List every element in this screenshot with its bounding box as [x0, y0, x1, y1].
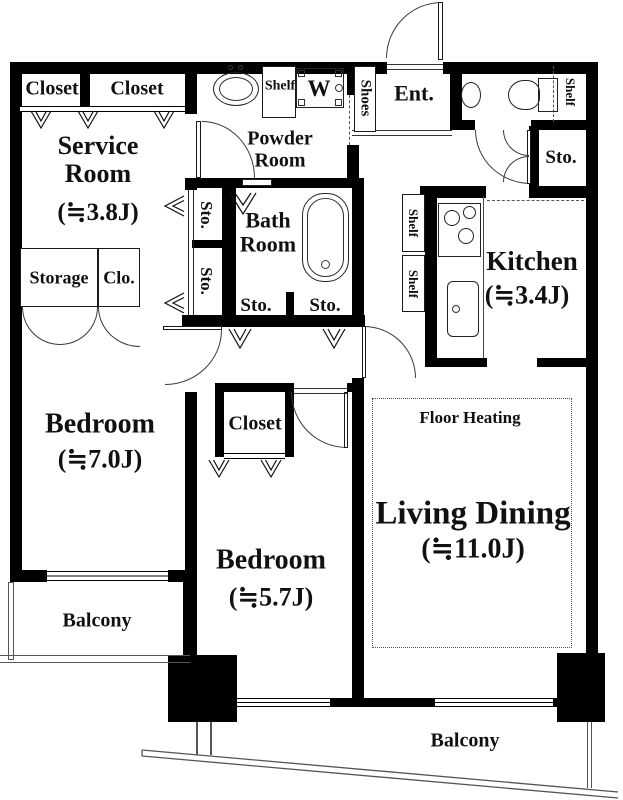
powder-room-label: Powder Room — [225, 128, 335, 171]
powder-shelf-label: Shelf — [265, 80, 295, 95]
storage-door-arc-left[interactable] — [22, 307, 60, 345]
wall-closet-center-left — [215, 383, 224, 457]
bedroom-center-balcony-window — [237, 698, 330, 707]
pillar-southwest — [168, 655, 237, 722]
bedroom-west-balcony-window — [47, 571, 168, 581]
bedroom-west-door-leaf[interactable] — [163, 326, 222, 330]
sto-passage-lower-label: Sto. — [196, 267, 216, 295]
folding-door-mark-sto-left — [227, 328, 253, 350]
stove-burner-1 — [444, 210, 460, 226]
shoes-label: Shoes — [357, 80, 374, 117]
wall-kitchen-west — [425, 190, 437, 367]
wall-powder-left-upper — [185, 62, 197, 114]
balcony-south-parapet-slanted — [130, 742, 623, 800]
living-dining-label: Living Dining — [375, 497, 570, 532]
wall-bedroom-west-bottom-left — [10, 570, 47, 582]
pillar-southeast — [557, 653, 605, 722]
toilet-bowl — [508, 80, 540, 110]
service-room-label: Service Room — [33, 132, 163, 188]
wall-sto-entry-bottom — [529, 186, 586, 198]
sto-entry-label: Sto. — [545, 148, 576, 168]
wall-right — [586, 62, 598, 658]
wall-closet-center-top — [215, 383, 294, 392]
folding-door-mark-closet-center-1 — [207, 459, 231, 479]
powder-hatch — [242, 179, 272, 186]
washer-corner-tab-tr — [335, 70, 342, 77]
bath-room-label: Bath Room — [223, 208, 313, 256]
folding-door-mark-closet-a2 — [76, 110, 100, 130]
wall-toilet-bottom-left — [450, 120, 475, 130]
wall-bottom-a — [330, 698, 435, 707]
folding-door-mark-sto-passage-lower — [162, 291, 186, 315]
entrance-door-arc[interactable] — [386, 2, 442, 58]
folding-door-mark-sto-passage-upper — [162, 194, 186, 218]
living-dining-size: (≒11.0J) — [421, 534, 525, 563]
wall-bath-right — [352, 186, 364, 327]
living-door-leaf[interactable] — [362, 326, 366, 378]
washer-corner-tab-tl — [298, 70, 305, 77]
toilet-corner-basin — [461, 82, 481, 108]
wall-bedroom-west-bottom-right — [168, 570, 197, 582]
wall-bedroom-center-top — [347, 383, 364, 392]
wall-closet-divider — [80, 62, 90, 108]
sto-hall-right-label: Sto. — [309, 296, 340, 316]
wall-powder-bottom — [192, 178, 355, 188]
powder-sink-faucet-2 — [238, 65, 243, 70]
balcony-south-label: Balcony — [431, 731, 500, 752]
sto-passage-upper-label: Sto. — [196, 201, 216, 229]
balcony-west-label: Balcony — [63, 611, 132, 632]
floor-plan: Closet Closet Service Room (≒3.8J) Stora… — [0, 0, 623, 800]
powder-sink-faucet — [228, 65, 233, 70]
powder-sink-basin — [219, 77, 253, 101]
wall-kitchen-south-right — [537, 358, 586, 367]
bedroom-center-threshold — [294, 388, 347, 394]
wall-left — [10, 62, 22, 582]
bedroom-center-door-leaf[interactable] — [344, 392, 348, 448]
sto-column-front-line — [188, 190, 194, 315]
toilet-tank — [538, 78, 558, 112]
kitchen-size: (≒3.4J) — [485, 281, 570, 308]
entrance-door-leaf[interactable] — [438, 2, 443, 60]
wall-sto-column-divider — [192, 240, 222, 248]
kitchen-counter-line — [483, 196, 486, 358]
washer-label: W — [308, 77, 331, 101]
washer-drain — [335, 84, 343, 92]
closet-a-label: Closet — [25, 79, 78, 100]
kitchen-shelf-b-label: Shelf — [405, 270, 421, 298]
sto-hall-left-label: Sto. — [240, 296, 271, 316]
folding-door-mark-closet-a1 — [29, 110, 53, 130]
entrance-threshold — [387, 64, 443, 70]
bedroom-west-size: (≒7.0J) — [58, 445, 143, 472]
kitchen-label: Kitchen — [486, 247, 578, 275]
folding-door-mark-sto-right — [321, 328, 347, 350]
balcony-west-parapet-bottom — [0, 655, 190, 663]
kitchen-sink-faucet — [452, 305, 460, 313]
bedroom-west-label: Bedroom — [45, 409, 155, 438]
service-room-size: (≒3.8J) — [57, 200, 138, 226]
bathtub-drain — [321, 260, 330, 269]
folding-door-mark-closet-b — [152, 110, 176, 130]
balcony-west-parapet-left — [8, 582, 14, 660]
powder-door-leaf[interactable] — [196, 121, 201, 178]
storage-label: Storage — [30, 269, 89, 288]
clo-label: Clo. — [103, 269, 135, 288]
washer-corner-tab-br — [335, 99, 342, 106]
bedroom-center-door-arc[interactable] — [291, 392, 347, 448]
living-balcony-window — [435, 698, 553, 707]
wall-toilet-bottom-right — [531, 120, 586, 130]
wall-sto-row-divider — [286, 292, 294, 318]
living-door-arc[interactable] — [364, 326, 416, 378]
floor-heating-label: Floor Heating — [419, 409, 520, 427]
closet-b-label: Closet — [110, 79, 163, 100]
closet-center-label: Closet — [228, 414, 281, 435]
stove-burner-2 — [463, 206, 476, 219]
wall-top-right — [443, 62, 598, 74]
bedroom-center-label: Bedroom — [216, 545, 326, 574]
clo-door-arc[interactable] — [98, 307, 140, 347]
entrance-label: Ent. — [394, 81, 434, 104]
bedroom-west-door-arc[interactable] — [165, 330, 222, 385]
storage-door-arc-right[interactable] — [60, 307, 98, 345]
stove-burner-3 — [458, 228, 474, 244]
kitchen-shelf-a-label: Shelf — [405, 209, 421, 237]
wall-balcony-west-right — [183, 582, 194, 658]
folding-door-mark-closet-center-2 — [259, 459, 283, 479]
wall-kitchen-south-left — [430, 358, 487, 367]
bedroom-center-size: (≒5.7J) — [229, 583, 314, 610]
powder-right-dashed-line — [349, 95, 350, 145]
wall-ld-west — [352, 392, 364, 707]
kitchen-overhead-dashed-line — [487, 200, 584, 201]
washer-corner-tab-bl — [298, 99, 305, 106]
toilet-shelf-label: Shelf — [562, 78, 578, 106]
